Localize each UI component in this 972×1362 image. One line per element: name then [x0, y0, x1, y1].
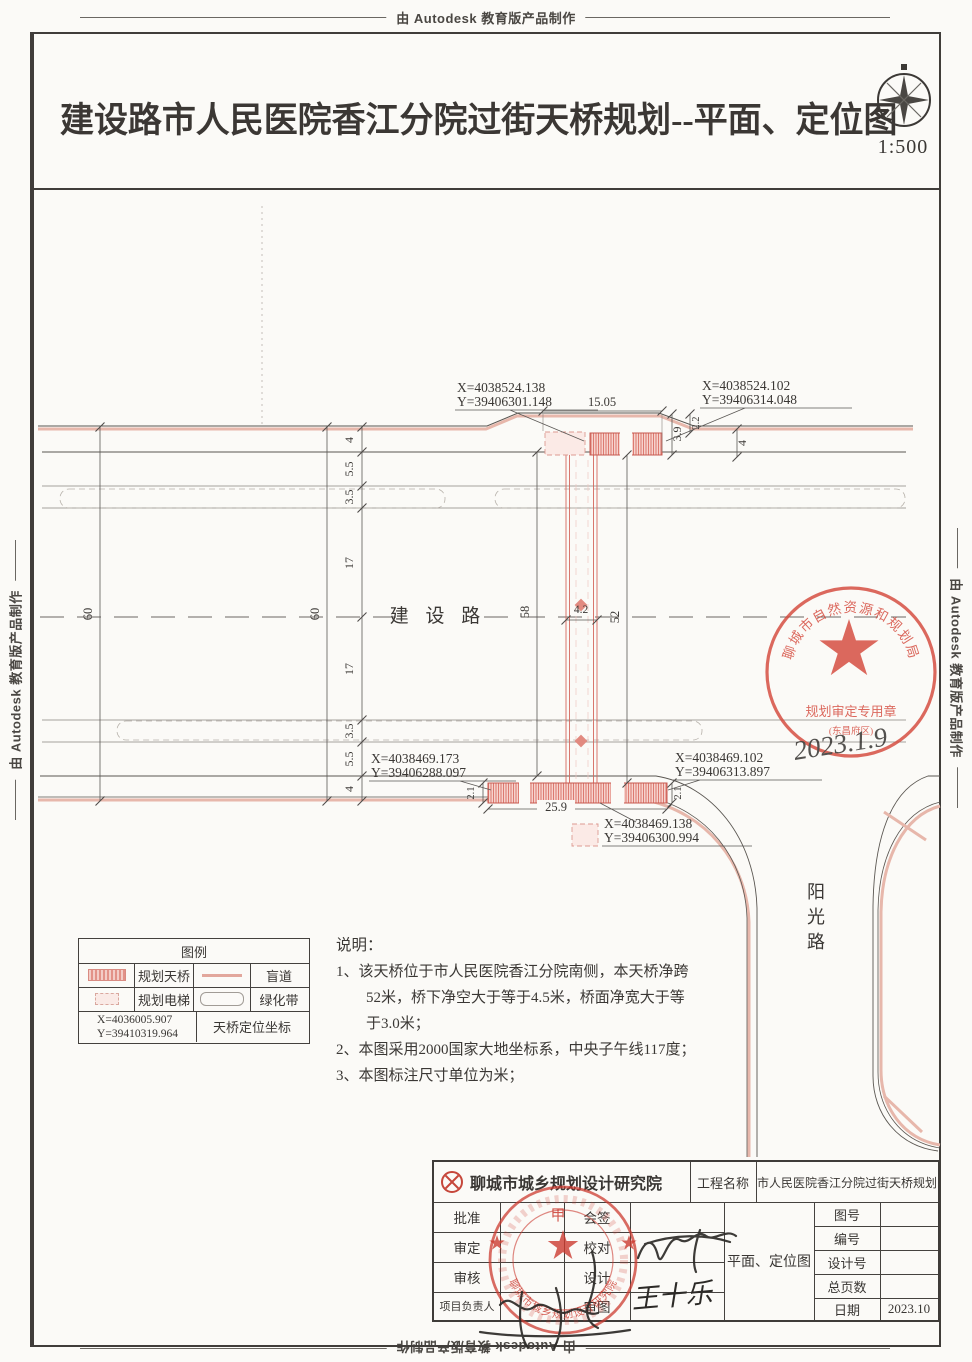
- coord-x: X=4038524.138: [457, 380, 545, 395]
- role-label-proofread: 校对: [564, 1232, 630, 1262]
- road-label-jianshe: 建 设 路: [390, 605, 487, 627]
- legend-label-cell: 规划天桥: [135, 963, 194, 987]
- dim-label: 3.5: [342, 490, 356, 505]
- coord-north-west: X=4038524.138 Y=39406301.148: [455, 380, 598, 441]
- east-sidewalk-edge: [878, 802, 940, 1148]
- legend-datum-row: X=4036005.907 Y=39410319.964 天桥定位坐标: [79, 1011, 309, 1042]
- note-line: 3、本图标注尺寸单位为米；: [336, 1063, 788, 1089]
- legend-datum-coords: X=4036005.907 Y=39410319.964: [79, 1011, 197, 1042]
- green-belt: [495, 489, 905, 508]
- dim-label: 60: [81, 608, 95, 621]
- note-line: 于3.0米；: [336, 1011, 788, 1037]
- dim-label: 4: [735, 440, 749, 446]
- legend-label-cell: 绿化带: [251, 987, 307, 1011]
- legend-box: 图例 规划天桥 盲道 规划电梯 绿化带 X=4036005.907 Y=3941…: [78, 938, 310, 1044]
- scale-label: 1:500: [858, 136, 948, 159]
- notes-heading: 说明：: [336, 933, 788, 959]
- field-label-total-pages: 总页数: [814, 1274, 880, 1298]
- stair-break: [519, 782, 530, 804]
- field-value-design-no: [880, 1250, 938, 1274]
- planned-bridge-symbol: [88, 969, 126, 981]
- dim-label: 4.2: [574, 604, 589, 616]
- planned-elevator-south: [572, 824, 598, 846]
- role-label-project-lead: 项目负责人: [434, 1292, 500, 1320]
- role-label-design: 设计: [564, 1262, 630, 1292]
- coord-y: Y=39406314.048: [702, 392, 797, 407]
- legend-symbol-cell: [194, 987, 251, 1011]
- datum-coords-text: X=4036005.907 Y=39410319.964: [97, 1013, 178, 1041]
- datum-label: 天桥定位坐标: [213, 1017, 291, 1036]
- site-plan-svg: 60 60 4 5.5 3.5 17 17 3.5 5.5 4 15.05 3.…: [0, 0, 972, 1362]
- dim-label: 17: [342, 663, 356, 675]
- dim-label: 60: [308, 608, 322, 621]
- role-label-examine: 审定: [434, 1232, 500, 1262]
- field-label-design-no: 设计号: [814, 1250, 880, 1274]
- dim-label: 2.1: [466, 786, 477, 799]
- legend-label: 绿化带: [259, 990, 298, 1009]
- legend-row: 规划天桥 盲道: [79, 963, 309, 988]
- dim-label: 5.5: [342, 752, 356, 767]
- datum-y: Y=39410319.964: [97, 1028, 178, 1040]
- institute-logo-icon: [440, 1170, 464, 1194]
- legend-label-cell: 规划电梯: [135, 987, 194, 1011]
- datum-x: X=4036005.907: [97, 1014, 172, 1026]
- field-value-figure-no: [880, 1202, 938, 1226]
- green-belt: [117, 721, 702, 740]
- role-label-review: 审核: [434, 1262, 500, 1292]
- role-label-drawing-review: 审图: [564, 1292, 630, 1320]
- coord-y: Y=39406313.897: [675, 764, 770, 779]
- dim-label: 5.5: [342, 462, 356, 477]
- legend-label-cell: 盲道: [251, 963, 307, 987]
- legend-symbol-cell: [79, 963, 135, 987]
- notes-block: 说明： 1、该天桥位于市人民医院香江分院南侧，本天桥净跨 52米，桥下净空大于等…: [336, 933, 788, 1089]
- field-label-date: 日期: [814, 1298, 880, 1320]
- dim-label: 25.9: [545, 800, 567, 814]
- field-value-date: 2023.10: [880, 1298, 938, 1320]
- drawing-name: 平面、定位图: [724, 1202, 814, 1320]
- institute-name: 聊城市城乡规划设计研究院: [470, 1170, 662, 1194]
- stamp-purpose: 规划审定专用章: [805, 704, 896, 719]
- dim-label: 52: [608, 611, 622, 624]
- handwritten-date: 2023.1.9: [791, 721, 890, 765]
- approval-stamp: 聊城市自然资源和规划局 规划审定专用章 (东昌府区) 2023.1.9: [767, 588, 935, 766]
- field-value-total-pages: [880, 1274, 938, 1298]
- north-sidewalk-edge: [38, 413, 913, 426]
- legend-symbol-cell: [194, 963, 251, 987]
- project-name-label: 工程名称: [690, 1162, 756, 1202]
- coord-y: Y=39406301.148: [457, 394, 552, 409]
- dim-label: 4: [342, 437, 356, 443]
- road-label-yangguang-3: 路: [807, 932, 825, 952]
- blind-path-symbol: [202, 974, 242, 977]
- legend-label: 规划电梯: [138, 990, 190, 1009]
- grid-line: [500, 1202, 501, 1320]
- legend-datum-label-cell: 天桥定位坐标: [197, 1011, 307, 1042]
- coord-y: Y=39406288.097: [371, 765, 466, 780]
- legend-title: 图例: [181, 942, 207, 961]
- planned-bridge: [488, 432, 667, 846]
- north-blind-path-band: [38, 416, 913, 429]
- stamp-star: [820, 619, 879, 675]
- title-block: 聊城市城乡规划设计研究院 工程名称 市人民医院香江分院过街天桥规划 批准 会签 …: [432, 1160, 940, 1322]
- coord-x: X=4038469.173: [371, 751, 459, 766]
- legend-symbol-cell: [79, 987, 135, 1011]
- road-label-yangguang-2: 光: [807, 907, 825, 927]
- east-blind-path-band: [881, 806, 940, 1145]
- role-label-approve: 批准: [434, 1202, 500, 1232]
- dim-label: 4: [342, 786, 356, 792]
- south-landing-hatched: [488, 783, 667, 803]
- legend-title-row: 图例: [79, 939, 309, 964]
- compass-rose-icon: [872, 64, 936, 132]
- green-belt: [60, 489, 445, 508]
- planned-elevator-north: [545, 432, 585, 455]
- drawing-sheet: 由 Autodesk 教育版产品制作 由 Autodesk 教育版产品制作 由 …: [0, 0, 972, 1362]
- dim-label: 3.5: [342, 724, 356, 739]
- dim-label: 2.2: [691, 416, 702, 429]
- page-title: 建设路市人民医院香江分院过街天桥规划--平面、定位图: [60, 92, 846, 143]
- stair-break: [611, 782, 624, 804]
- coord-y: Y=39406300.994: [604, 830, 699, 845]
- green-belt-symbol: [200, 992, 244, 1006]
- coord-x: X=4038469.102: [675, 750, 763, 765]
- dim-label: 15.05: [588, 395, 616, 409]
- bridge-span-edges: [566, 455, 597, 783]
- legend-label: 盲道: [266, 966, 292, 985]
- institute-cell: 聊城市城乡规划设计研究院: [440, 1162, 688, 1202]
- coord-x: X=4038524.102: [702, 378, 790, 393]
- note-line: 1、该天桥位于市人民医院香江分院南侧，本天桥净跨: [336, 959, 788, 985]
- role-label-countersign: 会签: [564, 1202, 630, 1232]
- dim-label: 17: [342, 557, 356, 569]
- dim-label: 58: [518, 606, 532, 619]
- field-value-serial-no: [880, 1226, 938, 1250]
- field-label-figure-no: 图号: [814, 1202, 880, 1226]
- note-line: 52米，桥下净空大于等于4.5米，桥面净宽大于等: [336, 985, 788, 1011]
- legend-label: 规划天桥: [138, 966, 190, 985]
- planned-elevator-symbol: [95, 993, 119, 1005]
- legend-row: 规划电梯 绿化带: [79, 987, 309, 1012]
- grid-line: [630, 1202, 631, 1320]
- leader-line: [668, 780, 822, 790]
- road-label-yangguang-1: 阳: [807, 882, 825, 902]
- dim-label: 2.1: [673, 786, 684, 799]
- project-name-value: 市人民医院香江分院过街天桥规划: [756, 1162, 938, 1202]
- bridge-pier-marker: [575, 735, 588, 748]
- field-label-serial-no: 编号: [814, 1226, 880, 1250]
- note-line: 2、本图采用2000国家大地坐标系，中央子午线117度；: [336, 1037, 788, 1063]
- coord-x: X=4038469.138: [604, 816, 692, 831]
